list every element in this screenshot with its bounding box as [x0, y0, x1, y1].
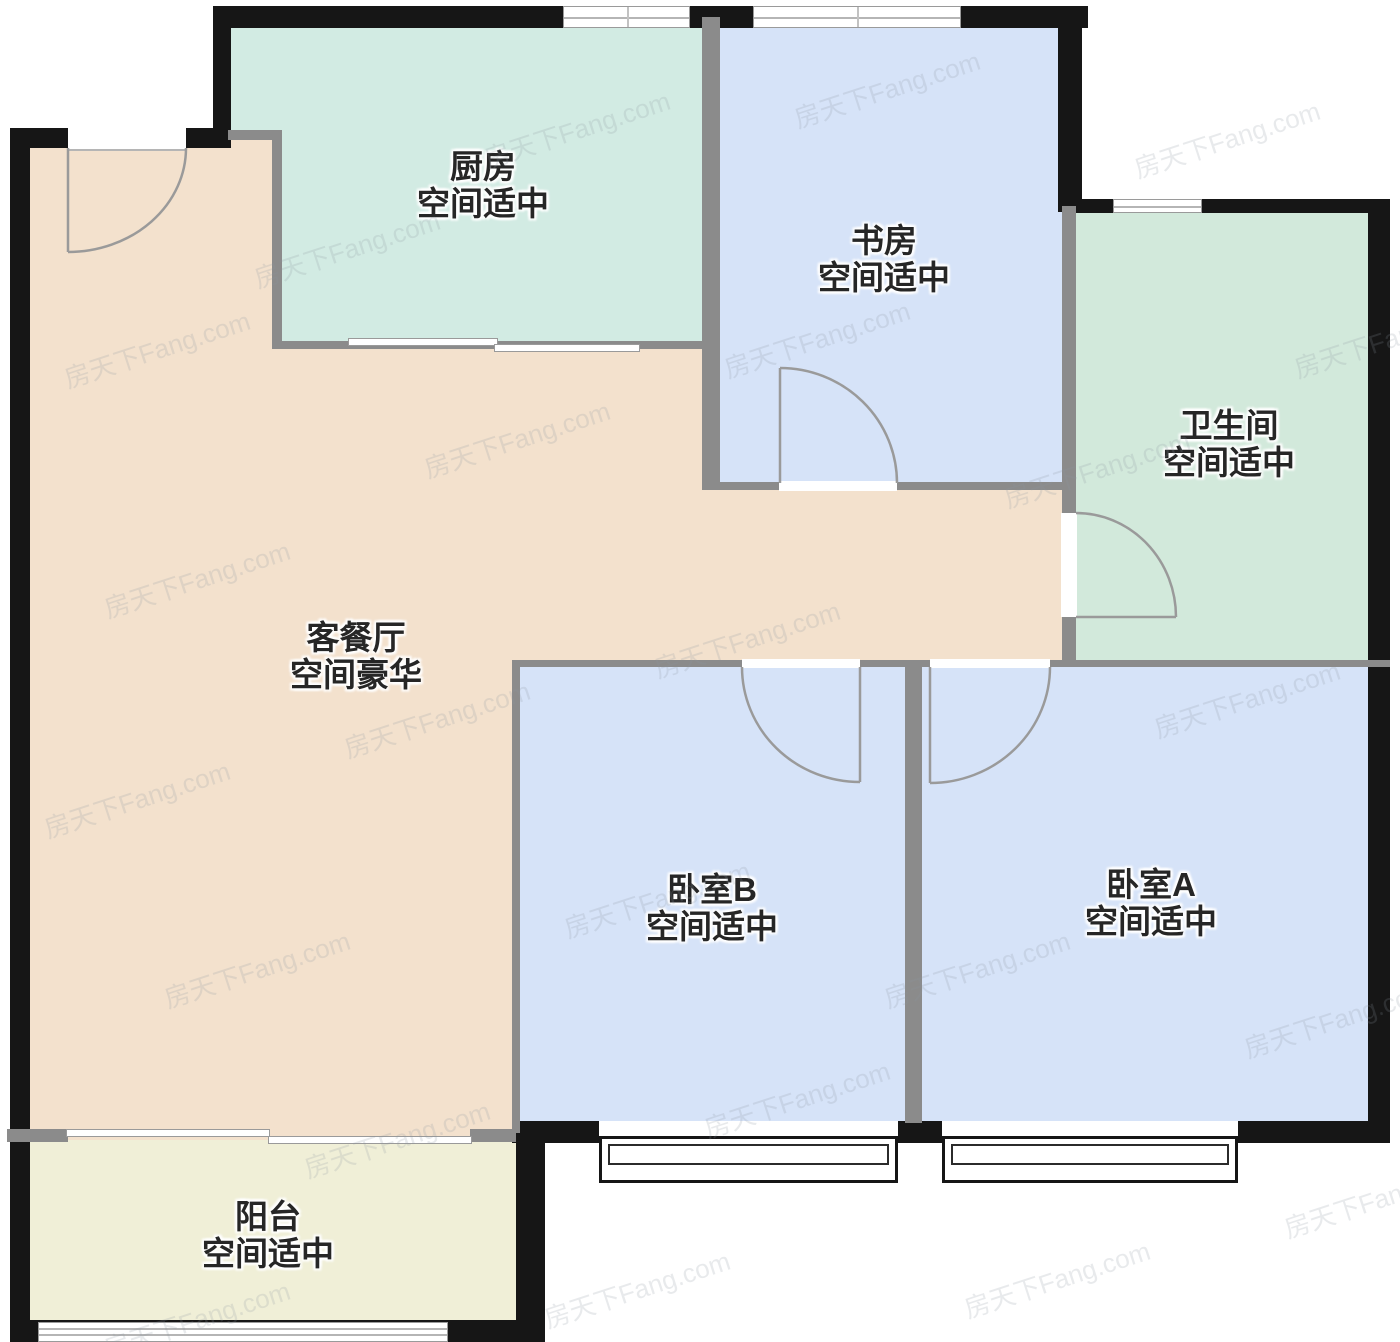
kitchen-sliding-door-panel	[348, 338, 498, 346]
bay-window-glass	[608, 1144, 889, 1165]
window-divider	[627, 7, 629, 27]
bay-window-glass	[951, 1144, 1229, 1165]
room-living-dining-label: 客餐厅 空间豪华	[290, 619, 422, 693]
room-size: 空间适中	[1085, 903, 1217, 940]
room-size: 空间适中	[202, 1235, 334, 1272]
kitchen-sliding-door-panel	[494, 344, 640, 352]
wall-balcony-right	[516, 1133, 545, 1342]
watermark: 房天下Fang.com	[539, 1241, 735, 1336]
bedroom-a-door-opening	[930, 659, 1050, 668]
bedroom-b-door-opening	[742, 659, 860, 668]
bathroom-top-window	[1113, 199, 1202, 213]
watermark: 房天下Fang.com	[1279, 1151, 1400, 1246]
entrance-door-opening	[68, 127, 186, 151]
wall-left	[10, 128, 30, 1342]
room-bathroom-label: 卫生间 空间适中	[1163, 407, 1295, 481]
room-bedroom-b-label: 卧室B 空间适中	[646, 871, 778, 945]
room-kitchen-label: 厨房 空间适中	[417, 148, 549, 222]
wall-balcony-rail-left	[7, 1129, 68, 1142]
room-size: 空间豪华	[290, 656, 422, 693]
room-name: 书房	[818, 222, 950, 259]
wall-kitchen-left	[213, 6, 231, 148]
room-size: 空间适中	[646, 908, 778, 945]
balcony-sliding-door-panel	[66, 1129, 270, 1137]
study-door-opening	[779, 481, 897, 491]
watermark: 房天下Fang.com	[959, 1231, 1155, 1326]
bathroom-door-opening	[1061, 513, 1077, 617]
watermark: 房天下Fang.com	[1129, 91, 1325, 186]
wall-balcony-rail-right	[470, 1129, 516, 1142]
room-study-label: 书房 空间适中	[818, 222, 950, 296]
floorplan-canvas: 厨房 空间适中 书房 空间适中 卫生间 空间适中 客餐厅 空间豪华 卧室B 空间…	[0, 0, 1400, 1342]
window-glass-line	[1114, 206, 1201, 208]
balcony-bottom-window	[38, 1322, 448, 1342]
wall-kitchen-interior-left	[272, 130, 282, 349]
room-name: 卫生间	[1163, 407, 1295, 444]
window-glass-line	[39, 1334, 447, 1336]
window-divider	[857, 7, 859, 27]
bedroom-b-bay-window	[599, 1136, 898, 1183]
wall-right	[1368, 199, 1390, 1143]
wall-bedrooms-divider	[905, 667, 922, 1123]
wall-kitchen-step	[228, 130, 282, 140]
room-balcony-label: 阳台 空间适中	[202, 1198, 334, 1272]
room-size: 空间适中	[417, 185, 549, 222]
kitchen-top-window	[563, 6, 690, 28]
room-name: 客餐厅	[290, 619, 422, 656]
window-glass-line	[39, 1328, 447, 1330]
room-name: 卧室A	[1085, 866, 1217, 903]
room-size: 空间适中	[1163, 444, 1295, 481]
study-top-window	[753, 6, 961, 28]
room-bedroom-a-label: 卧室A 空间适中	[1085, 866, 1217, 940]
room-name: 阳台	[202, 1198, 334, 1235]
balcony-sliding-door-panel	[268, 1136, 472, 1144]
bedroom-a-bay-window	[942, 1136, 1238, 1183]
room-kitchen-fill	[228, 17, 714, 135]
wall-kitchen-study-divider	[702, 17, 720, 490]
room-name: 厨房	[417, 148, 549, 185]
room-name: 卧室B	[646, 871, 778, 908]
wall-study-right	[1058, 6, 1082, 212]
wall-bedroom-b-left	[512, 660, 520, 1133]
room-size: 空间适中	[818, 259, 950, 296]
